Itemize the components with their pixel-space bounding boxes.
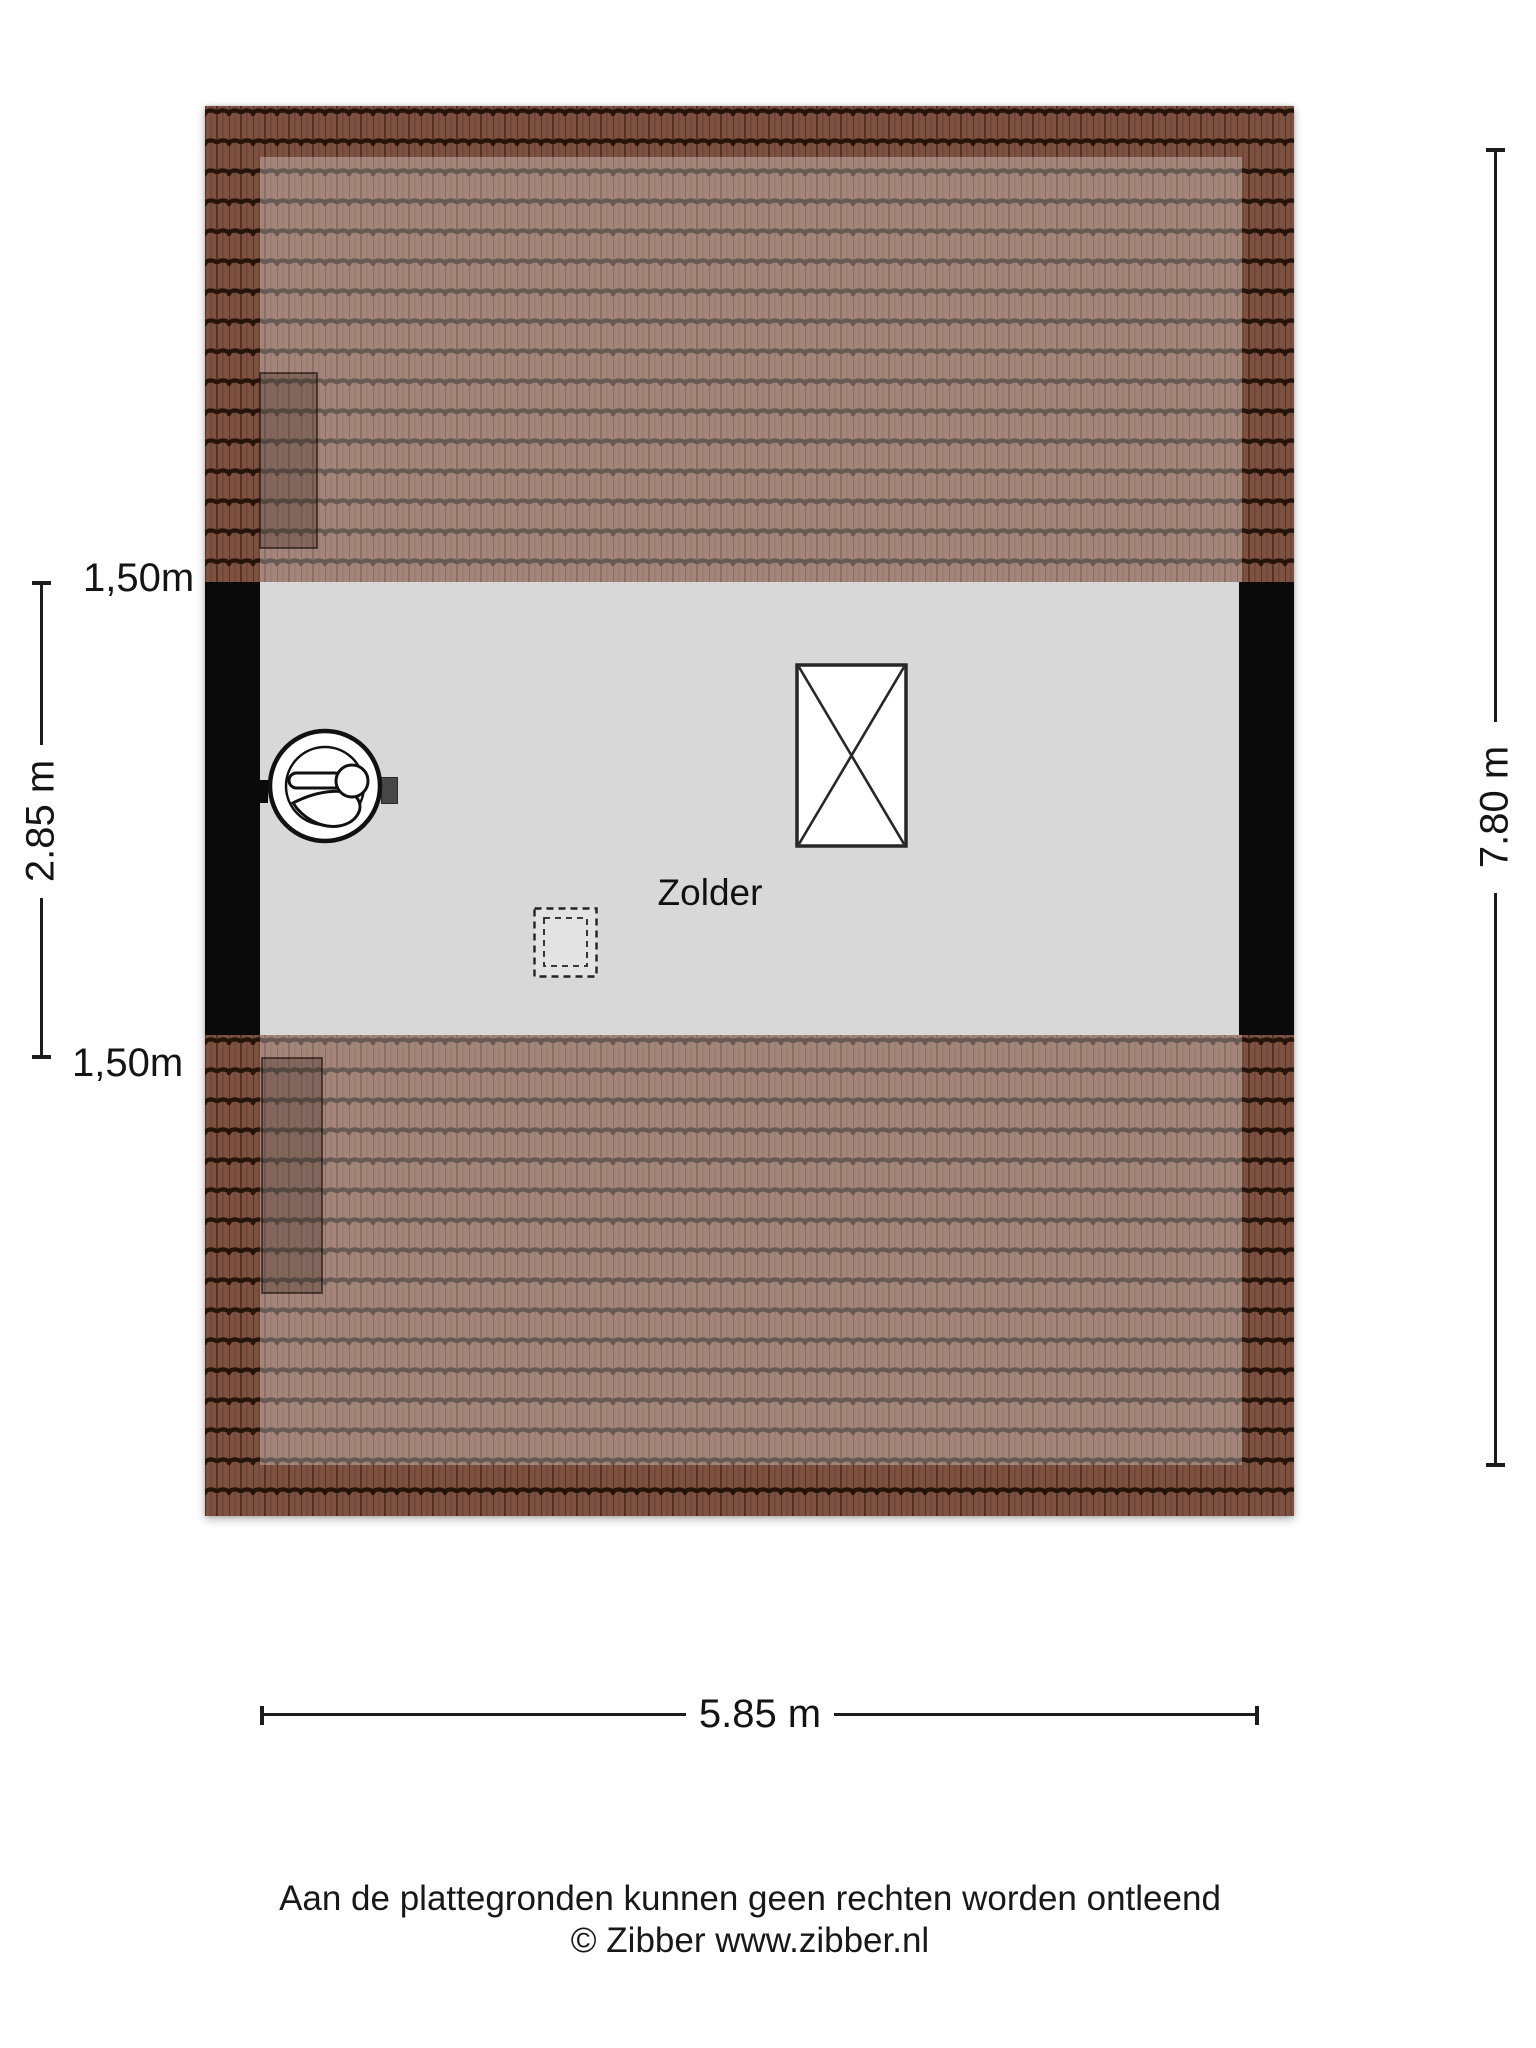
dim-right-tick-bottom — [1486, 1463, 1505, 1467]
loft-hatch-icon — [533, 907, 598, 978]
footer: Aan de plattegronden kunnen geen rechten… — [150, 1878, 1350, 1962]
dim-right-line-lower — [1494, 893, 1497, 1465]
roof-bottom — [205, 1035, 1294, 1516]
dim-label-left-top: 1,50m — [83, 556, 194, 601]
dim-right-line-upper — [1494, 150, 1497, 722]
roof-window-icon — [795, 663, 908, 848]
attic-floor — [260, 582, 1239, 1035]
floorplan: Zolder — [205, 106, 1294, 1516]
roof-dormer-bottom — [262, 1058, 322, 1293]
dim-bottom-line-left — [262, 1713, 686, 1716]
disclaimer-text: Aan de plattegronden kunnen geen rechten… — [150, 1878, 1350, 1920]
boiler-icon — [260, 721, 390, 851]
dim-bottom-tick-right — [1255, 1706, 1259, 1725]
dim-left-line-upper — [40, 583, 43, 745]
roof-dormer-top — [260, 373, 317, 548]
dim-left-line-lower — [40, 898, 43, 1057]
roof-bottom-inner-area — [260, 1035, 1242, 1465]
copyright-text: © Zibber www.zibber.nl — [150, 1920, 1350, 1962]
room-label: Zolder — [635, 872, 785, 914]
dim-label-bottom-width: 5.85 m — [660, 1692, 860, 1737]
dim-label-left-bottom: 1,50m — [72, 1041, 183, 1086]
dim-bottom-line-right — [834, 1713, 1257, 1716]
roof-top-inner-area — [260, 157, 1242, 582]
dim-left-tick-bottom — [32, 1055, 51, 1059]
dim-label-right-height: 7.80 m — [1473, 746, 1518, 868]
dim-label-left-height: 2.85 m — [19, 760, 64, 882]
roof-top — [205, 106, 1294, 582]
knee-wall-left — [205, 582, 260, 1035]
knee-wall-right — [1239, 582, 1294, 1035]
